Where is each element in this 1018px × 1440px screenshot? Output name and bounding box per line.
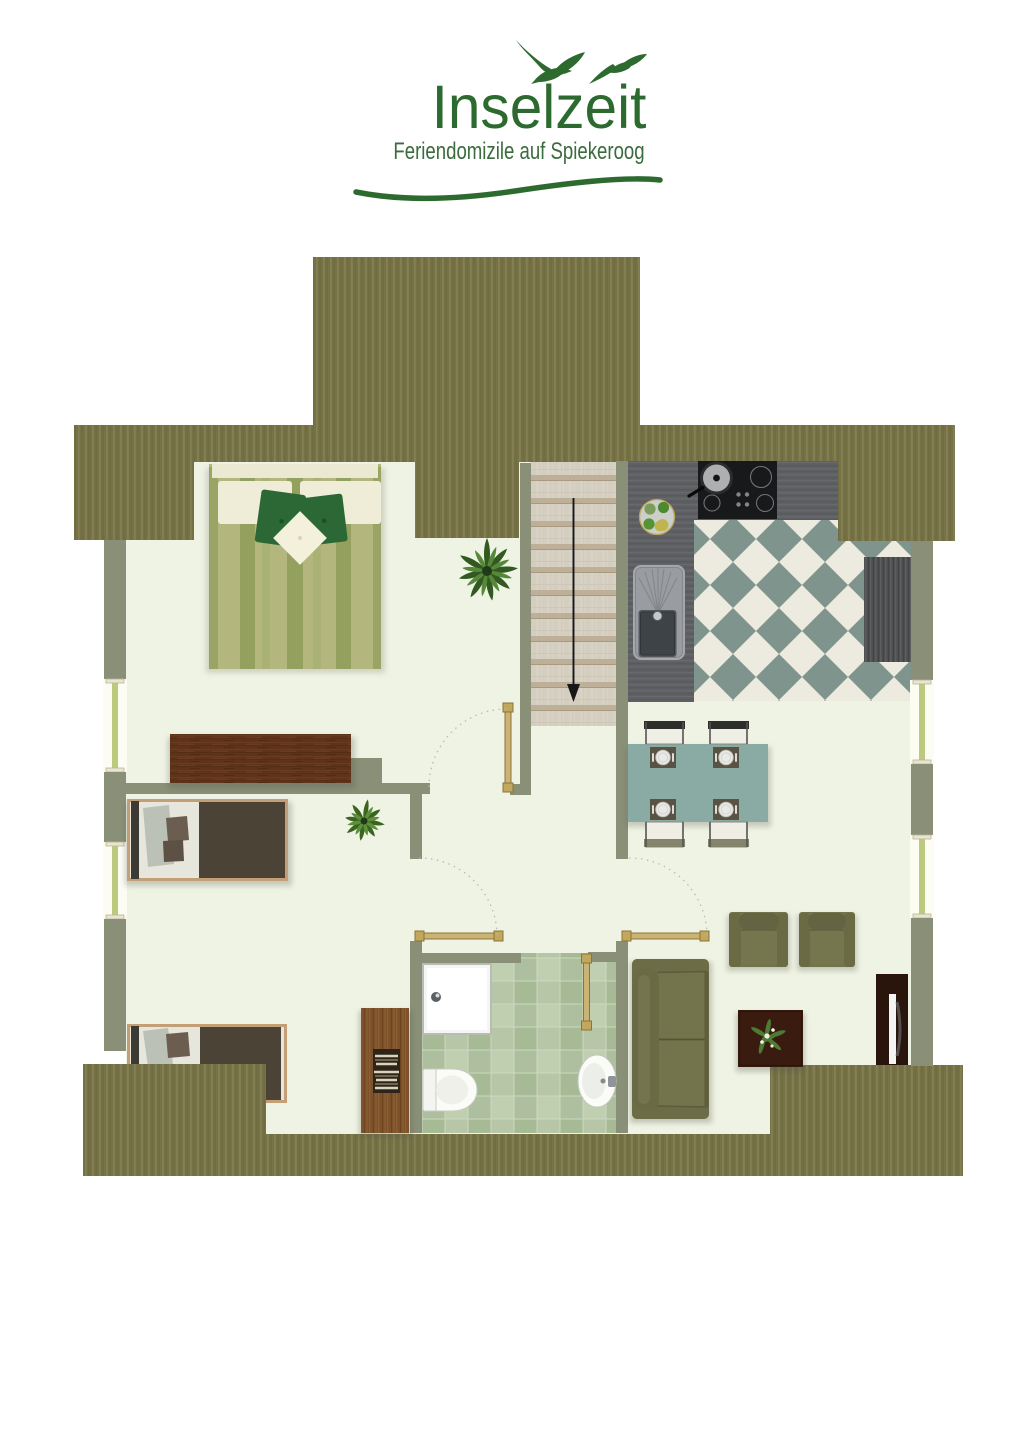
svg-text:Feriendomizile auf Spiekeroog: Feriendomizile auf Spiekeroog bbox=[393, 138, 644, 165]
svg-text:Inselzeit: Inselzeit bbox=[432, 73, 647, 141]
